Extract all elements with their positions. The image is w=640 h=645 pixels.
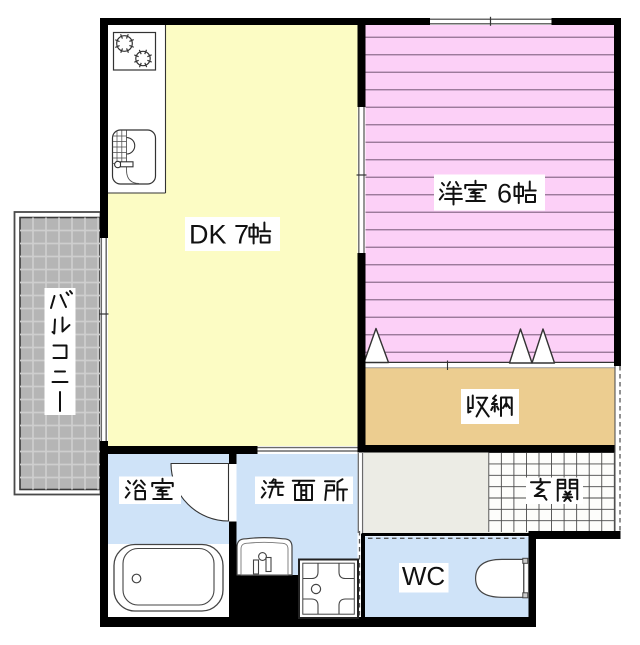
svg-text:6: 6 [497, 179, 512, 209]
svg-text:DK 7: DK 7 [189, 220, 249, 250]
svg-text:WC: WC [402, 561, 445, 591]
